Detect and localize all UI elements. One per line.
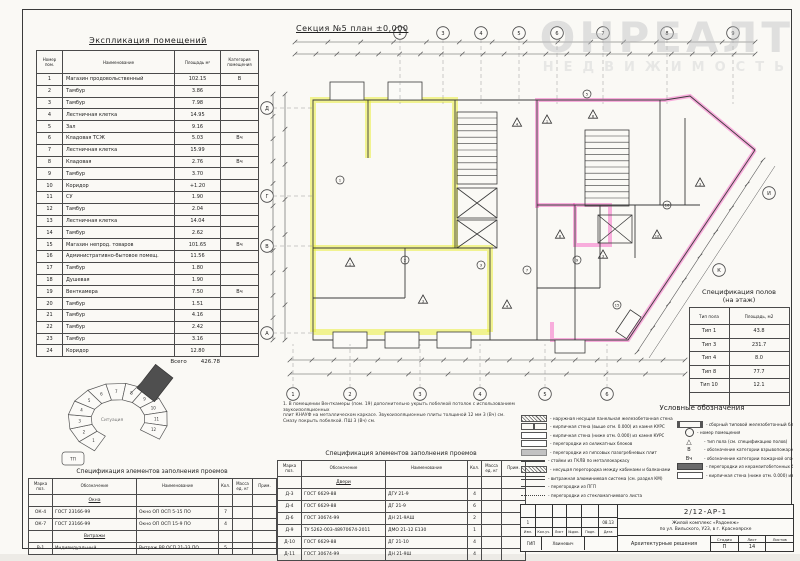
table-row: 8Кладовая2.76Вч — [37, 156, 259, 168]
table-row: 14Тамбур2.62 — [37, 227, 259, 239]
svg-text:7: 7 — [115, 389, 118, 394]
stamp-cell: 1 — [521, 518, 536, 527]
svg-text:3: 3 — [418, 392, 421, 398]
stamp-cell — [567, 518, 583, 527]
table-cell: 102.15 — [175, 74, 221, 86]
note-line: Смазу покрыть побелкой. ПШ 3 (Вч) см. — [283, 419, 533, 425]
grid-axis-bubble: 7 — [597, 27, 610, 40]
table-cell: 101.65 — [175, 239, 221, 251]
window-bays — [330, 82, 641, 353]
stamp-cell: Лист — [553, 528, 567, 536]
column-header: Наименование — [386, 461, 468, 477]
site-scheme: 123456789101112СитуацияТП — [26, 364, 216, 474]
table-row: В-1ИндивидуальныйВитраж ВР ОСП 21-33 ПО5 — [29, 543, 277, 555]
table-cell — [233, 531, 253, 543]
table-row: 4Лестничная клетка14.95 — [37, 109, 259, 121]
table-row: 19Венткамера7.50Вч — [37, 286, 259, 298]
table-cell: 2.04 — [175, 203, 221, 215]
svg-text:Г: Г — [265, 194, 268, 200]
table-cell — [482, 477, 502, 489]
table-cell: 8.0 — [729, 352, 789, 366]
svg-text:8: 8 — [559, 234, 562, 238]
table-cell — [253, 495, 277, 507]
table-cell: 4 — [37, 109, 63, 121]
explication-table: Номер пом.НаименованиеПлощадь м²Категори… — [36, 50, 259, 357]
table-cell: Венткамера — [63, 286, 175, 298]
table-cell: 13 — [37, 215, 63, 227]
table-cell — [29, 531, 53, 543]
room-number-marker: 15 — [613, 301, 621, 309]
stamp-cell — [599, 505, 617, 517]
table-row: 3Тамбур7.98 — [37, 97, 259, 109]
table-cell: 6 — [468, 501, 482, 513]
grid-axis-bubble: К — [713, 264, 726, 277]
column-header: Масса ед. кг — [233, 479, 253, 495]
table-cell: Д-4 — [278, 501, 302, 513]
table-cell: 1.51 — [175, 298, 221, 310]
table-cell: ОК-7 — [29, 519, 53, 531]
legend-item: △- тип пола (см. спецификацию полов) — [677, 438, 793, 444]
legend-item: - кирпичная стена (выше отм. 0.000) из к… — [521, 424, 673, 430]
legend-item: - стойки из ГКЛВ по металлокаркасу — [521, 458, 673, 464]
stage-value: П — [711, 543, 739, 551]
table-row: 7Лестничная клетка15.99 — [37, 144, 259, 156]
openings-windows-title: Спецификация элементов заполнения проемо… — [28, 468, 276, 475]
table-row: Тип 48.0 — [689, 352, 789, 366]
table-cell: 43.8 — [729, 325, 789, 339]
svg-text:3: 3 — [422, 299, 424, 303]
legend-text: - обозначение категории взрывопожарной о… — [704, 447, 793, 452]
floors-title-2: (на этаж) — [686, 296, 792, 304]
svg-text:16: 16 — [665, 203, 670, 208]
svg-text:7: 7 — [526, 268, 529, 273]
table-cell: ГОСТ 6629-88 — [302, 537, 386, 549]
table-cell: 231.7 — [729, 338, 789, 352]
stamp-cell — [536, 505, 553, 517]
grid-axis-bubble: 5 — [539, 388, 552, 401]
table-cell: Тамбур — [63, 203, 175, 215]
table-cell: Тамбур — [63, 168, 175, 180]
column-header: Категория помещения — [221, 51, 259, 74]
svg-text:9: 9 — [576, 258, 579, 263]
table-cell: 24 — [37, 345, 63, 357]
svg-text:1: 1 — [546, 119, 548, 123]
table-cell: Д-3 — [278, 489, 302, 501]
table-cell: Д-10 — [278, 537, 302, 549]
column-header: Марка поз. — [278, 461, 302, 477]
legend-item: - перегородки из ПГП — [521, 484, 673, 490]
table-cell: 2.62 — [175, 227, 221, 239]
legend-item: - перегородки из стекломагниевого листа — [521, 492, 673, 498]
stamp-cell — [553, 505, 567, 517]
table-cell: Лестничная клетка — [63, 109, 175, 121]
legend-text: - несущая перегородка между кабинами и б… — [550, 467, 670, 472]
svg-text:3: 3 — [480, 263, 483, 268]
table-row: 11СУ1.90 — [37, 191, 259, 203]
legend-text: - кирпичная стена (ниже отм. 0.000) из к… — [550, 433, 664, 438]
table-row: Тип 143.8 — [689, 325, 789, 339]
thin-symbol-icon — [521, 486, 545, 487]
table-cell: ДГ 21-10 — [386, 537, 468, 549]
floors-table: Тип полаПлощадь, м2 Тип 143.8Тип 3231.7Т… — [689, 307, 790, 406]
table-cell: В — [221, 74, 259, 86]
stamp-cell — [521, 505, 536, 517]
floor-type-marker: 8 — [588, 110, 597, 118]
table-cell — [253, 543, 277, 555]
openings-doors-title: Спецификация элементов заполнения проемо… — [277, 450, 525, 457]
table-cell: ДГУ 21-9 — [386, 489, 468, 501]
table-cell: 2.76 — [175, 156, 221, 168]
legend-title: Условные обозначения — [611, 404, 793, 412]
table-cell: +1.20 — [175, 180, 221, 192]
sheet-value: 14 — [739, 543, 767, 551]
floor-type-marker: 8 — [555, 230, 564, 238]
table-cell — [221, 309, 259, 321]
table-cell: 4.16 — [175, 309, 221, 321]
grid-axis-bubble: 4 — [474, 388, 487, 401]
table-cell — [253, 507, 277, 519]
table-row: 1Магазин продовольственный102.15В — [37, 74, 259, 86]
svg-text:3: 3 — [602, 254, 604, 258]
document-number: 2/12-АР-1 — [618, 505, 793, 519]
stairs-and-shafts — [457, 112, 632, 248]
stamp-cell: №док. — [567, 528, 583, 536]
svg-text:4: 4 — [479, 31, 482, 37]
table-cell — [482, 525, 502, 537]
column-header: Марка поз. — [29, 479, 53, 495]
svg-text:1: 1 — [339, 178, 342, 183]
table-cell: Магазин непрод. товаров — [63, 239, 175, 251]
stamp-cell: ГИП — [521, 537, 542, 550]
table-cell: 1 — [468, 525, 482, 537]
project-name: Жилой комплекс «Радонеж» по ул. Вильског… — [618, 519, 793, 536]
table-cell: Зал — [63, 121, 175, 133]
svg-text:12: 12 — [151, 427, 157, 432]
legend-text: - сборный типовой железобетонный блок — [706, 422, 793, 427]
table-cell — [137, 531, 219, 543]
room-number-marker: 1 — [336, 176, 344, 184]
table-cell: 14 — [37, 227, 63, 239]
openings-doors-block: Спецификация элементов заполнения проемо… — [277, 450, 525, 561]
table-row: 22Тамбур2.42 — [37, 321, 259, 333]
floor-type-marker: 4 — [502, 300, 511, 308]
table-cell: 7 — [37, 144, 63, 156]
table-row: Д-11ГОСТ 30674-99ДН 21-9Ш4 — [278, 549, 526, 561]
table-cell — [468, 477, 482, 489]
legend-item: В- обозначение категории взрывопожарной … — [677, 447, 793, 453]
stamp-cell — [582, 505, 599, 517]
table-cell: Лестничная клетка — [63, 144, 175, 156]
table-row: 24Коридор12.80 — [37, 345, 259, 357]
column-header: Наименование — [137, 479, 219, 495]
svg-text:15: 15 — [615, 303, 620, 308]
stamp-cell — [536, 518, 553, 527]
table-cell: 3.86 — [175, 85, 221, 97]
table-cell: Д-6 — [278, 513, 302, 525]
svg-text:5: 5 — [543, 392, 546, 398]
dot-symbol-icon — [521, 495, 545, 496]
table-cell — [221, 203, 259, 215]
table-cell: 3.70 — [175, 168, 221, 180]
svg-text:5: 5 — [88, 398, 91, 403]
svg-text:10: 10 — [655, 234, 660, 238]
table-cell — [253, 531, 277, 543]
table-cell — [482, 549, 502, 561]
sheet-label: Лист — [739, 536, 767, 542]
sheets-value — [766, 543, 793, 551]
table-cell: СУ — [63, 191, 175, 203]
column-header: Кол. — [468, 461, 482, 477]
svg-text:3: 3 — [441, 31, 444, 37]
table-cell: Тамбур — [63, 298, 175, 310]
table-cell: 4 — [468, 489, 482, 501]
column-header: Площадь, м2 — [729, 308, 789, 325]
txtBch-symbol-icon: Вч — [677, 456, 701, 461]
legend-text: - перегородки из керамзитобетонных блоко… — [706, 464, 793, 469]
svg-text:5: 5 — [517, 31, 520, 37]
sheet-name: Архитектурные решения — [618, 536, 711, 551]
table-cell: ДМО 21-12 Е130 — [386, 525, 468, 537]
table-row: Д-3ГОСТ 6629-88ДГУ 21-94 — [278, 489, 526, 501]
room-number-marker: 5 — [583, 90, 591, 98]
legend-text: - тип пола (см. спецификацию полов) — [704, 439, 787, 444]
stamp-cell: Изм. — [521, 528, 536, 536]
table-cell — [221, 191, 259, 203]
column-header: Площадь м² — [175, 51, 221, 74]
column-header: Обозначение — [53, 479, 137, 495]
svg-text:11: 11 — [154, 416, 160, 421]
legend-text: - перегородки из ПГП — [548, 484, 596, 489]
table-cell: Тамбур — [63, 85, 175, 97]
table-cell: 1.90 — [175, 274, 221, 286]
legend-text: - кирпичная стена (ниже отм. 0.000) из к… — [706, 473, 793, 478]
table-cell: Коридор — [63, 345, 175, 357]
stage-sheet-cells: Стадия Лист Листов П 14 — [711, 536, 793, 551]
table-cell: 5.03 — [175, 132, 221, 144]
table-cell: 2 — [468, 513, 482, 525]
svg-text:2: 2 — [348, 392, 351, 398]
table-cell: 23 — [37, 333, 63, 345]
table-cell: 15.99 — [175, 144, 221, 156]
outline-symbol-icon — [521, 432, 547, 439]
outline-symbol-icon — [677, 472, 703, 479]
table-cell: 7 — [219, 507, 233, 519]
table-cell: 19 — [37, 286, 63, 298]
table-cell: 3 — [37, 97, 63, 109]
table-cell: Вч — [221, 132, 259, 144]
table-cell: Кладовая — [63, 156, 175, 168]
table-cell: Лестничная клетка — [63, 215, 175, 227]
svg-text:К: К — [717, 268, 721, 274]
table-cell: 2 — [37, 85, 63, 97]
legend-item: - перегородки из силикатных блоков — [521, 441, 673, 447]
table-cell — [221, 168, 259, 180]
table-cell: ДН 21-9Ш — [386, 549, 468, 561]
legend-text: - перегородки из силикатных блоков — [550, 441, 632, 446]
stamp-cell: Подп. — [582, 528, 599, 536]
table-cell — [221, 180, 259, 192]
table-cell: 12 — [37, 203, 63, 215]
svg-text:И: И — [767, 191, 771, 197]
floor-type-marker: 4 — [512, 118, 521, 126]
title-block: 108.13Изм.Кол.уч.Лист№док.Подп.ДатаГИПХв… — [520, 504, 794, 552]
legend-text: - кирпичная стена (выше отм. 0.000) из к… — [550, 424, 665, 429]
table-cell: Административно-бытовое помещ. — [63, 250, 175, 262]
table-cell: Коридор — [63, 180, 175, 192]
table-cell: 11.56 — [175, 250, 221, 262]
room-number-marker: 7 — [523, 266, 531, 274]
site-section: 12 — [140, 423, 167, 439]
table-cell — [221, 121, 259, 133]
legend-item: - сборный типовой железобетонный блок — [677, 421, 793, 427]
project-line-2: по ул. Вильского, У23, в г. Красноярске — [660, 527, 752, 533]
table-cell: 1.80 — [175, 262, 221, 274]
table-cell — [482, 537, 502, 549]
legend-item: - несущая перегородка между кабинами и б… — [521, 467, 673, 473]
column-header: Обозначение — [302, 461, 386, 477]
plan-markers: 134831041831237915165 — [336, 90, 705, 309]
stamp-cell — [553, 518, 567, 527]
table-cell: 21 — [37, 309, 63, 321]
table-row: Тип 3231.7 — [689, 338, 789, 352]
table-cell — [221, 262, 259, 274]
svg-text:6: 6 — [100, 391, 103, 396]
table-cell: Тип 8 — [689, 365, 729, 379]
legend-item: - номер помещения — [677, 430, 793, 436]
openings-doors-table: Марка поз.ОбозначениеНаименованиеКол.Мас… — [277, 460, 526, 561]
stamp-cell: Дата — [599, 528, 617, 536]
yellow-wall-highlight — [313, 100, 490, 332]
table-row: 5Зал9.16 — [37, 121, 259, 133]
svg-text:6: 6 — [605, 392, 608, 398]
group-row: Витражи — [29, 531, 277, 543]
table-cell: Витражи — [53, 531, 137, 543]
stage-label: Стадия — [711, 536, 739, 542]
room-number-marker: 3 — [477, 261, 485, 269]
table-row: Тип 1012.1 — [689, 379, 789, 393]
svg-text:4: 4 — [478, 392, 481, 398]
table-cell: 1.90 — [175, 191, 221, 203]
table-cell: Тамбур — [63, 97, 175, 109]
floor-type-marker: 1 — [345, 258, 354, 266]
grid-axis-bubble: И — [763, 187, 776, 200]
grid-axis-bubble: 2 — [344, 388, 357, 401]
legend-item: - перегородки из керамзитобетонных блоко… — [677, 464, 793, 470]
table-cell: Двери — [302, 477, 386, 489]
table-cell: ДН 21-9АШ — [386, 513, 468, 525]
table-cell: 18 — [37, 274, 63, 286]
table-cell: 9.16 — [175, 121, 221, 133]
svg-text:4: 4 — [506, 304, 509, 308]
table-cell: Тамбур — [63, 321, 175, 333]
svg-text:3: 3 — [699, 182, 701, 186]
table-cell — [233, 507, 253, 519]
legend-item: - витражная алюминиевая система (см. раз… — [521, 475, 673, 481]
explication-title: Экспликация помещений — [36, 36, 260, 45]
svg-text:9: 9 — [731, 31, 734, 37]
table-cell: ТУ 5262-003-48970674-2011 — [302, 525, 386, 537]
table-row: 20Тамбур1.51 — [37, 298, 259, 310]
table-cell — [221, 298, 259, 310]
table-cell — [221, 274, 259, 286]
table-row: 10Коридор+1.20 — [37, 180, 259, 192]
stamp-cell — [582, 518, 599, 527]
grid-axis-bubble: 9 — [727, 27, 740, 40]
table-cell: 6 — [37, 132, 63, 144]
table-cell: ГОСТ 30674-99 — [302, 549, 386, 561]
paper-sheet: ОНРЕАЛТ НЕДВИЖИМОСТЬ Секция №5 план ±0,0… — [0, 0, 800, 554]
group-row: Двери — [278, 477, 526, 489]
table-cell: 4 — [219, 519, 233, 531]
legend-text: - наружная несущая панельная железобетон… — [550, 416, 673, 421]
stamp-signature-area: 108.13Изм.Кол.уч.Лист№док.Подп.ДатаГИПХв… — [521, 505, 618, 551]
group-row: Окна — [29, 495, 277, 507]
table-cell: ГОСТ 23166-99 — [53, 519, 137, 531]
table-cell: Магазин продовольственный — [63, 74, 175, 86]
table-cell — [482, 513, 502, 525]
txtB-symbol-icon: В — [677, 447, 701, 452]
legend-text: - перегородки из стекломагниевого листа — [548, 493, 642, 498]
grid-axis-bubble: Г — [261, 190, 274, 203]
legend-text: - номер помещения — [697, 430, 740, 435]
legend-text: - обозначение категории пожарной опаснос… — [704, 456, 793, 461]
site-tp-box: ТП — [62, 452, 84, 465]
sheets-label: Листов — [766, 536, 793, 542]
table-cell — [29, 495, 53, 507]
table-cell: 4 — [468, 537, 482, 549]
table-cell — [233, 495, 253, 507]
legend-item: - наружная несущая панельная железобетон… — [521, 415, 673, 421]
grid-axis-bubble: 5 — [513, 27, 526, 40]
legend-item: - перегородки из гипсовых пазогребневых … — [521, 449, 673, 455]
table-cell: 5 — [219, 543, 233, 555]
legend-item: - кирпичная стена (ниже отм. 0.000) из к… — [677, 473, 793, 479]
site-center-label: Ситуация — [101, 417, 124, 423]
table-cell: Д-11 — [278, 549, 302, 561]
legend-block: Условные обозначения - наружная несущая … — [521, 404, 793, 498]
table-cell: 2.42 — [175, 321, 221, 333]
table-cell: 12.80 — [175, 345, 221, 357]
svg-text:10: 10 — [151, 405, 157, 410]
table-cell: Индивидуальный — [53, 543, 137, 555]
column-header: Наименование — [63, 51, 175, 74]
table-cell: Душевая — [63, 274, 175, 286]
grid-axis-bubble: 6 — [551, 27, 564, 40]
svg-text:ТП: ТП — [69, 457, 76, 462]
floors-spec-block: Спецификация полов (на этаж) Тип полаПло… — [686, 288, 792, 406]
table-cell — [221, 250, 259, 262]
svg-text:8: 8 — [665, 31, 668, 37]
table-cell — [221, 321, 259, 333]
svg-text:9: 9 — [143, 396, 146, 401]
grid-axis-bubble: 3 — [437, 27, 450, 40]
svg-text:1: 1 — [291, 392, 294, 398]
column-header: Кол. — [219, 479, 233, 495]
floor-type-marker: 10 — [652, 230, 661, 238]
table-row: Д-10ГОСТ 6629-88ДГ 21-104 — [278, 537, 526, 549]
table-cell: 1 — [37, 74, 63, 86]
tri-symbol-icon: △ — [677, 439, 701, 444]
grid-axis-bubble: 4 — [475, 27, 488, 40]
table-cell: ГОСТ 6629-88 — [302, 489, 386, 501]
dline-symbol-icon — [521, 476, 545, 480]
table-cell: Д-9 — [278, 525, 302, 537]
table-cell — [482, 501, 502, 513]
table-cell — [219, 495, 233, 507]
table-row: 17Тамбур1.80 — [37, 262, 259, 274]
table-cell — [233, 519, 253, 531]
table-cell — [221, 215, 259, 227]
